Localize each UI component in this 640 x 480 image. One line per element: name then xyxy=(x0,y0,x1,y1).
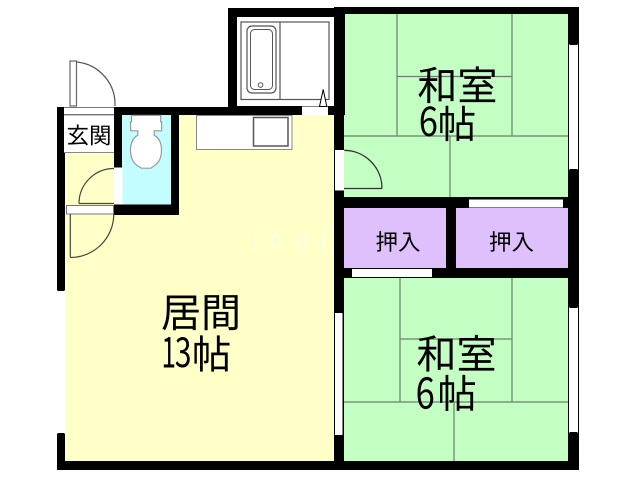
svg-text:jogj: jogj xyxy=(251,226,338,253)
